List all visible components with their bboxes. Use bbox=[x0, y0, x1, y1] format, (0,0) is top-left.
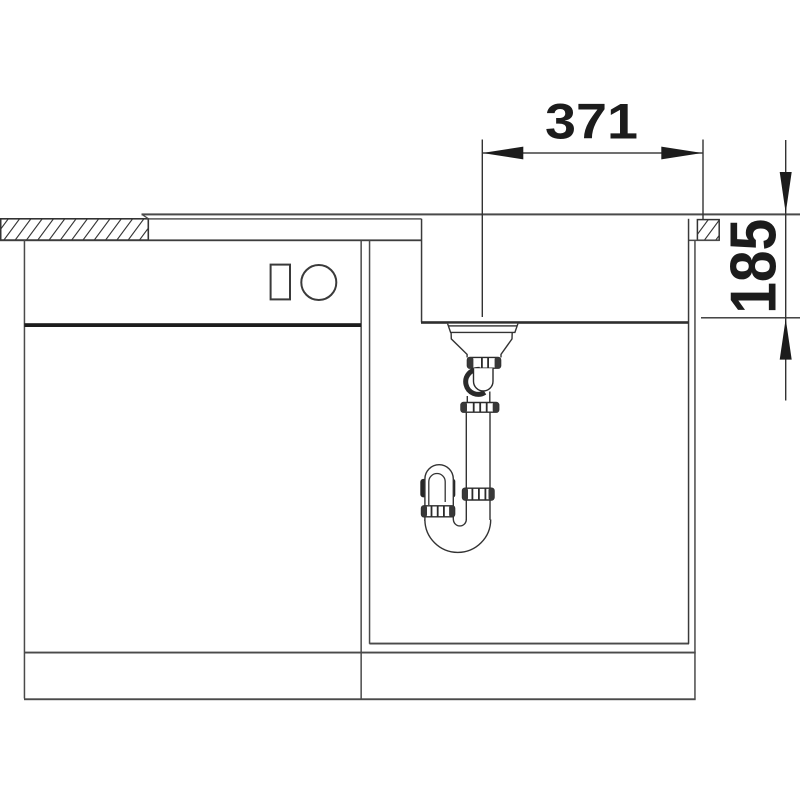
svg-text:371: 371 bbox=[545, 94, 638, 150]
svg-text:185: 185 bbox=[717, 219, 790, 314]
